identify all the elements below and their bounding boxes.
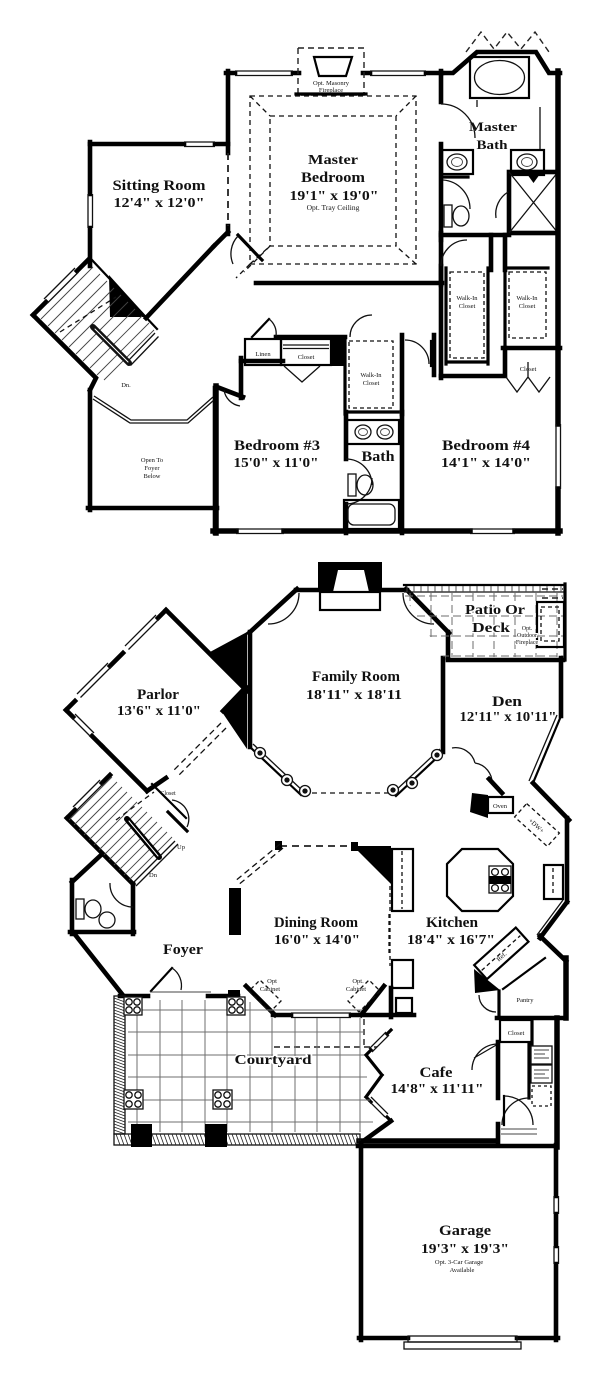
svg-text:Family Room: Family Room xyxy=(312,669,401,685)
svg-text:18'4" x 16'7": 18'4" x 16'7" xyxy=(407,933,495,948)
svg-text:Opt.: Opt. xyxy=(352,978,364,985)
svg-text:Fireplace: Fireplace xyxy=(319,87,343,94)
svg-text:Bath: Bath xyxy=(477,137,509,152)
svg-text:12'4" x 12'0": 12'4" x 12'0" xyxy=(114,196,205,211)
svg-text:18'11" x 18'11: 18'11" x 18'11 xyxy=(306,688,402,703)
svg-text:Walk-In: Walk-In xyxy=(360,372,382,379)
svg-text:Garage: Garage xyxy=(439,1223,491,1239)
svg-text:Cafe: Cafe xyxy=(420,1065,453,1081)
svg-text:Sitting Room: Sitting Room xyxy=(113,178,207,194)
svg-text:Closet: Closet xyxy=(363,380,380,387)
svg-text:Closet: Closet xyxy=(298,354,315,361)
svg-text:Walk-In: Walk-In xyxy=(516,295,538,302)
svg-text:Opt. 3-Car Garage: Opt. 3-Car Garage xyxy=(435,1259,483,1266)
svg-text:Courtyard: Courtyard xyxy=(235,1053,312,1068)
svg-text:Master: Master xyxy=(469,119,517,134)
svg-text:Open To: Open To xyxy=(141,457,163,464)
svg-text:Cabinet: Cabinet xyxy=(346,986,366,993)
svg-text:Opt: Opt xyxy=(267,978,277,985)
svg-text:Bedroom: Bedroom xyxy=(301,170,366,186)
svg-text:Pantry: Pantry xyxy=(517,997,535,1004)
svg-text:Opt.: Opt. xyxy=(522,626,533,632)
svg-text:Bath: Bath xyxy=(362,449,396,465)
svg-text:Cabinet: Cabinet xyxy=(260,986,280,993)
svg-text:14'1" x 14'0": 14'1" x 14'0" xyxy=(441,456,531,471)
svg-text:14'8" x 11'11": 14'8" x 11'11" xyxy=(391,1082,484,1097)
svg-text:16'0" x 14'0": 16'0" x 14'0" xyxy=(274,933,360,948)
svg-text:Dn: Dn xyxy=(149,872,158,879)
svg-text:Patio Or: Patio Or xyxy=(465,603,525,618)
svg-text:12'11" x 10'11": 12'11" x 10'11" xyxy=(460,710,557,725)
svg-text:13'6" x 11'0": 13'6" x 11'0" xyxy=(117,704,201,719)
svg-text:Kitchen: Kitchen xyxy=(426,915,479,931)
svg-text:Bedroom #4: Bedroom #4 xyxy=(442,438,531,454)
svg-text:Bedroom #3: Bedroom #3 xyxy=(234,438,320,454)
svg-text:Available: Available xyxy=(450,1267,475,1274)
svg-text:Below: Below xyxy=(144,473,161,480)
svg-text:Deck: Deck xyxy=(472,621,510,636)
svg-text:15'0" x 11'0": 15'0" x 11'0" xyxy=(234,456,319,471)
svg-text:Foyer: Foyer xyxy=(144,465,160,472)
svg-text:Master: Master xyxy=(308,153,358,168)
svg-text:Dn.: Dn. xyxy=(121,382,131,389)
svg-text:Oven: Oven xyxy=(493,803,508,810)
svg-text:Den: Den xyxy=(492,694,523,710)
svg-text:19'3" x 19'3": 19'3" x 19'3" xyxy=(421,1242,509,1257)
svg-text:Closet: Closet xyxy=(508,1030,525,1037)
svg-text:Closet: Closet xyxy=(519,303,536,310)
svg-text:Walk-In: Walk-In xyxy=(456,295,478,302)
svg-text:Up: Up xyxy=(177,844,185,851)
svg-text:Dining Room: Dining Room xyxy=(274,915,358,931)
svg-text:Foyer: Foyer xyxy=(163,942,203,958)
svg-text:Fireplace: Fireplace xyxy=(516,640,539,646)
svg-text:Opt. Masonry: Opt. Masonry xyxy=(313,80,350,87)
svg-text:19'1" x 19'0": 19'1" x 19'0" xyxy=(290,189,379,204)
svg-text:Opt. Tray Ceiling: Opt. Tray Ceiling xyxy=(307,203,360,212)
svg-text:Parlor: Parlor xyxy=(137,687,179,703)
svg-text:Linen: Linen xyxy=(255,351,271,358)
svg-text:Outdoor: Outdoor xyxy=(517,633,537,639)
svg-text:Closet: Closet xyxy=(160,791,176,797)
svg-text:Closet: Closet xyxy=(459,303,476,310)
